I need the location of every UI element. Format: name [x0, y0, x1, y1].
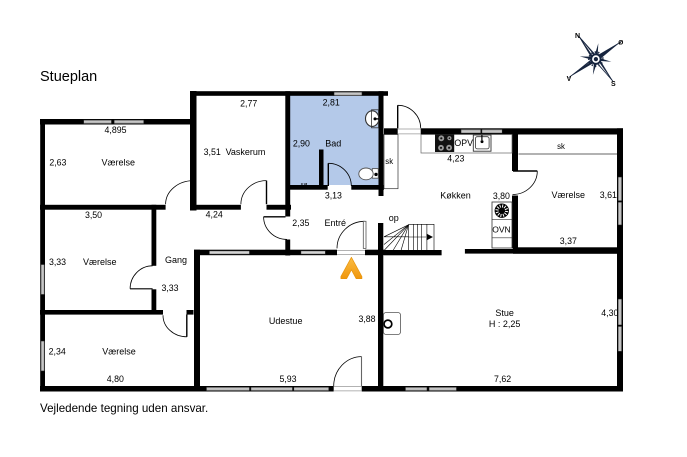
svg-text:3,51: 3,51 — [204, 147, 221, 157]
svg-text:Køkken: Køkken — [440, 191, 471, 201]
svg-text:OVN: OVN — [492, 225, 510, 235]
svg-text:Værelse: Værelse — [551, 190, 585, 200]
svg-text:op: op — [389, 213, 399, 223]
svg-text:H : 2,25: H : 2,25 — [489, 319, 521, 329]
svg-text:Værelse: Værelse — [83, 257, 117, 267]
svg-text:Værelse: Værelse — [102, 157, 136, 167]
svg-text:N: N — [575, 33, 580, 40]
svg-text:3,80: 3,80 — [493, 191, 510, 201]
svg-text:4,80: 4,80 — [107, 374, 124, 384]
svg-text:Ø: Ø — [618, 39, 623, 46]
svg-text:3,50: 3,50 — [85, 210, 102, 220]
svg-text:Vejledende tegning uden ansvar: Vejledende tegning uden ansvar. — [40, 402, 208, 415]
svg-text:2,63: 2,63 — [49, 157, 66, 167]
svg-text:Vaskerum: Vaskerum — [226, 147, 266, 157]
svg-text:Entré: Entré — [324, 218, 346, 228]
svg-text:2,81: 2,81 — [323, 98, 340, 108]
svg-text:sk: sk — [385, 157, 393, 166]
svg-text:3,33: 3,33 — [49, 257, 66, 267]
svg-text:7,62: 7,62 — [494, 374, 511, 384]
svg-text:Udestue: Udestue — [269, 316, 303, 326]
svg-text:5,93: 5,93 — [279, 374, 296, 384]
svg-text:4,23: 4,23 — [447, 153, 464, 163]
svg-text:3,33: 3,33 — [161, 283, 178, 293]
svg-text:V: V — [567, 76, 572, 83]
svg-text:4,895: 4,895 — [104, 125, 126, 135]
svg-text:2,34: 2,34 — [49, 347, 66, 357]
svg-text:Stueplan: Stueplan — [40, 69, 97, 85]
svg-text:3,37: 3,37 — [560, 236, 577, 246]
svg-text:Gang: Gang — [165, 255, 187, 265]
svg-text:3,61: 3,61 — [600, 190, 617, 200]
svg-text:2,77: 2,77 — [240, 99, 257, 109]
svg-text:2,35: 2,35 — [292, 218, 309, 228]
svg-text:Stue: Stue — [495, 308, 514, 318]
svg-text:2,90: 2,90 — [293, 138, 310, 148]
svg-text:4,24: 4,24 — [206, 209, 223, 219]
svg-text:Værelse: Værelse — [102, 347, 136, 357]
svg-text:OPV: OPV — [454, 138, 473, 148]
svg-text:Bad: Bad — [325, 138, 341, 148]
svg-text:sø: sø — [301, 183, 308, 189]
svg-text:3,13: 3,13 — [325, 191, 342, 201]
svg-text:sk: sk — [557, 142, 565, 151]
svg-text:3,88: 3,88 — [358, 314, 375, 324]
svg-text:S: S — [611, 81, 616, 88]
svg-text:4,30: 4,30 — [601, 308, 618, 318]
